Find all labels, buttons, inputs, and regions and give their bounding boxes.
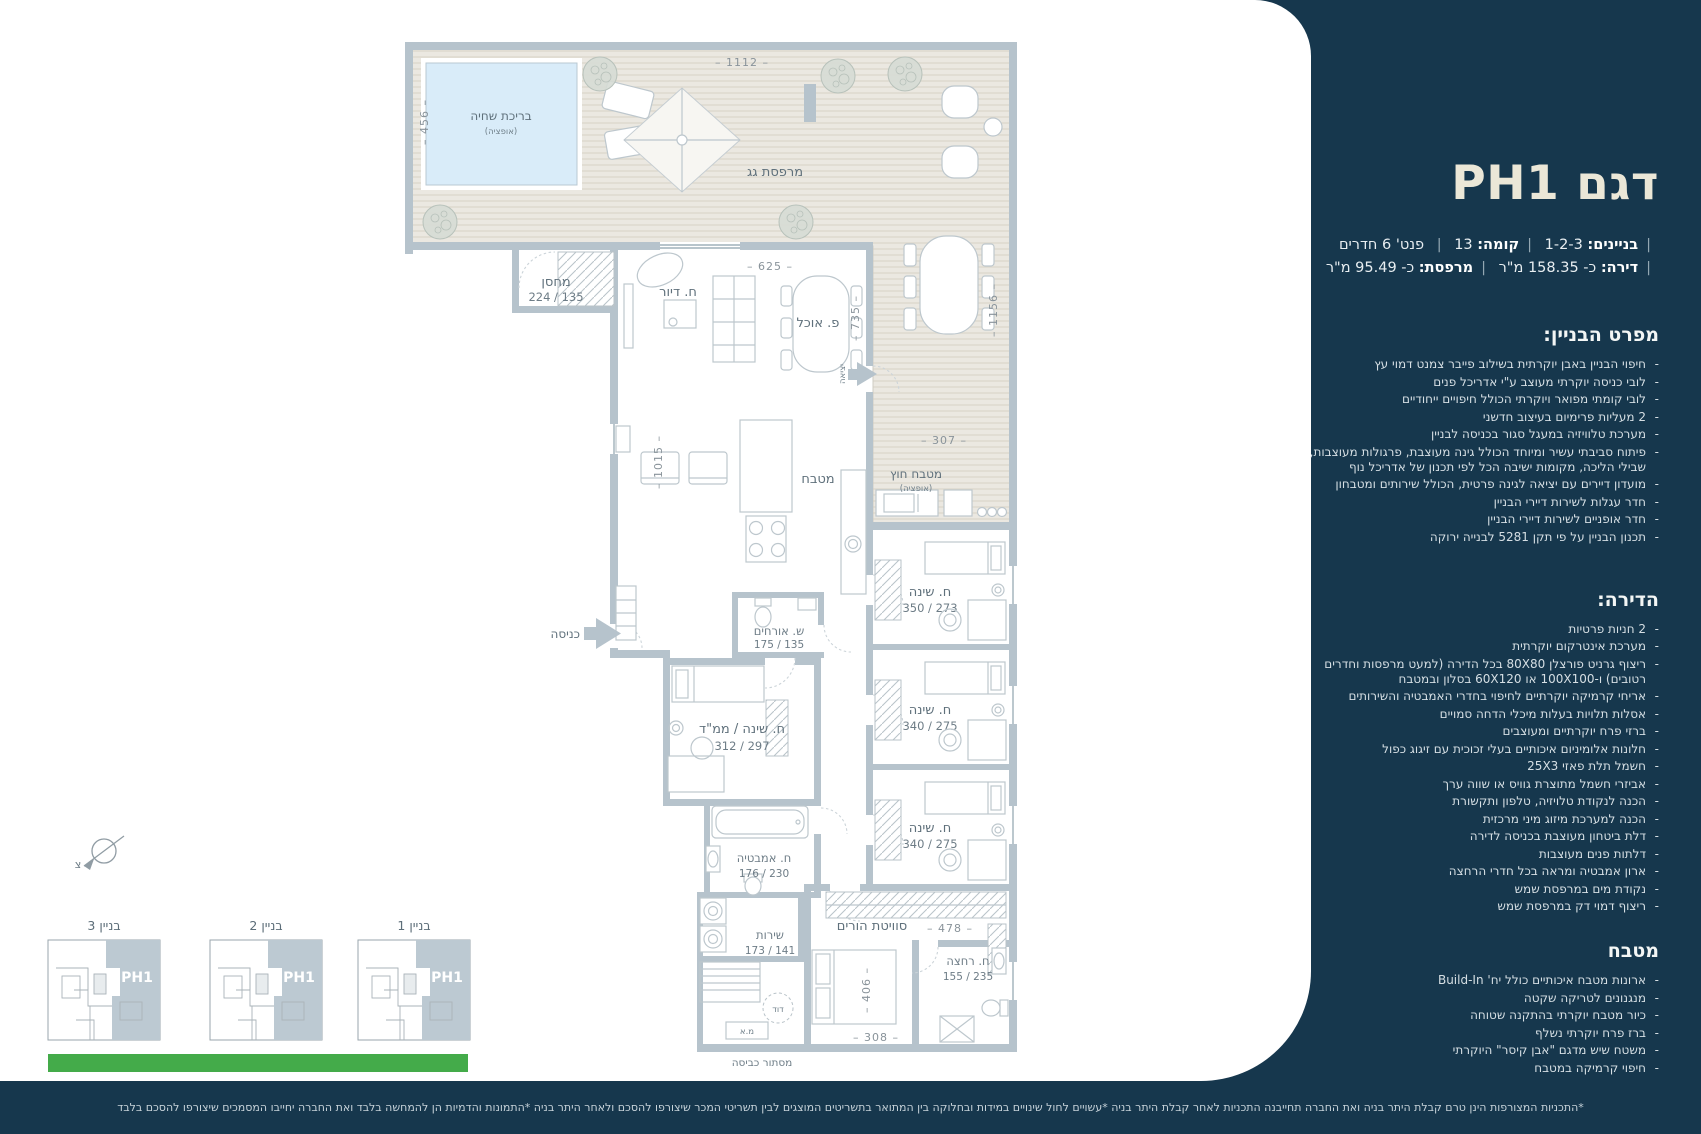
key-plan-unit-label: PH1 (283, 970, 315, 986)
spec-item: חיפוי הבניין באבן יוקרתית בשילוב פייבר צ… (1297, 357, 1659, 372)
spec-item: חיפוי קרמיקה במטבח (1297, 1061, 1659, 1076)
page-title: דגם PH1 (1297, 158, 1659, 210)
label-master-bath: ח. רחצה (946, 954, 989, 968)
north-compass-icon: צ (75, 836, 124, 871)
kitchen-spec-list: ארונות מטבח איכותיים כולל יח' Build-Inמנ… (1297, 973, 1659, 1076)
label-bedroom-2: ח. שינה (909, 703, 952, 718)
dim-master-bed: – 406 – (860, 967, 873, 1013)
spec-item: דלתות פנים מעוצבות (1297, 847, 1659, 862)
label-bedroom-1-dims: 350 / 273 (902, 601, 957, 615)
meta-segment: | פנט' 6 חדרים (1339, 237, 1450, 253)
label-north: צ (75, 858, 82, 871)
spec-item: כיור מטבח יוקרתי בהתקנה שטוחה (1297, 1008, 1659, 1023)
label-living: ח. דיור (659, 285, 697, 300)
page: { "colors":{ "navy":"#16374d","cream":"#… (0, 0, 1701, 1134)
label-master-suite: סוויטת הורים (837, 919, 907, 934)
spec-item: מערכת אינטרקום יוקרתית (1297, 639, 1659, 654)
spec-item: משטח שיש מדגם "אבן קיסר" היוקרתי (1297, 1043, 1659, 1058)
spec-item: ארונות מטבח איכותיים כולל יח' Build-In (1297, 973, 1659, 988)
spec-item: פיתוח סביבתי עשיר ומיוחד הכולל גינה מעוצ… (1297, 445, 1659, 475)
meta-segment: |בניינים: 1-2-3 (1545, 237, 1659, 253)
spec-item: ריצוף גרניט פורצלן 80X80 בכל הדירה (למעט… (1297, 657, 1659, 687)
label-bedroom-2-dims: 340 / 275 (902, 719, 957, 733)
meta-line-1: |בניינים: 1-2-3 |קומה: 13 | פנט' 6 חדרים (1297, 234, 1659, 257)
label-wc: שירות (756, 928, 784, 942)
dim-terrace: – 1156 – (987, 283, 1000, 337)
meta-segment: |מרפסת: כ- 95.49 מ"ר (1326, 260, 1494, 276)
label-bathroom-dims: 176 / 230 (739, 868, 789, 880)
label-roof-terrace: מרפסת גג (747, 165, 803, 180)
label-guest-wc-dims: 175 / 135 (754, 639, 804, 651)
spec-item: דלת ביטחון מעוצבת בכניסה לדירה (1297, 829, 1659, 844)
disclaimer-text: *התכניות המצורפות הינן טרם קבלת היתר בני… (117, 1101, 1584, 1114)
spec-item: ריצוף דמוי דק במרפסת שמש (1297, 899, 1659, 914)
spec-item: חדר עגלות לשירות דיירי הבניין (1297, 495, 1659, 510)
dim-kitchen: – 1015 – (652, 435, 665, 489)
label-master-bath-dims: 155 / 235 (943, 971, 993, 983)
key-plan-building-1: בניין 1 PH1 (358, 918, 470, 1040)
spec-item: ארון אמבטיה ומראה בכל חדרי הרחצה (1297, 864, 1659, 879)
label-storage-dims: 224 / 135 (528, 290, 583, 304)
section-heading-building: מפרט הבניין: (1297, 324, 1659, 346)
label-pool-option: (אופציה) (485, 127, 517, 137)
swimming-pool (421, 58, 582, 190)
label-boiler: דוד (772, 1005, 784, 1015)
label-ac: מ.א (740, 1027, 754, 1037)
spec-item: חשמל תלת פאזי 25X3 (1297, 759, 1659, 774)
dim-top: – 1112 – (715, 56, 769, 69)
dim-pool: – 456 – (418, 99, 431, 145)
meta-line-2: |דירה: כ- 158.35 מ"ר |מרפסת: כ- 95.49 מ"… (1297, 257, 1659, 280)
label-laundry: מסתור כביסה (732, 1057, 793, 1069)
spec-item: הכנה לנקודת טלויזיה, טלפון ותקשורת (1297, 794, 1659, 809)
label-bedroom-3: ח. שינה (909, 821, 952, 836)
dim-outdoor-kitchen: – 307 – (921, 434, 967, 447)
spec-item: ברז פרח יוקרתי נשלף (1297, 1026, 1659, 1041)
spec-item: ברזי פרח יוקרתיים ומעוצבים (1297, 724, 1659, 739)
spec-item: תכנון הבניין על פי תקן 5281 לבנייה ירוקה (1297, 530, 1659, 545)
guest-wc-fixtures (755, 598, 816, 627)
spec-item: מועדון דיירים עם יציאה לגינה פרטית, הכול… (1297, 477, 1659, 492)
key-plan-title: בניין 3 (87, 918, 120, 933)
footer: *התכניות המצורפות הינן טרם קבלת היתר בני… (0, 1081, 1701, 1134)
dim-living: – 625 – (747, 260, 793, 273)
label-entrance: כניסה (551, 627, 580, 641)
spec-item: חדר אופניים לשירות דיירי הבניין (1297, 512, 1659, 527)
key-plan-building-3: בניין 3 PH1 (48, 918, 160, 1040)
spec-item: חלונות אלומיניום איכותיים בעלי זכוכית עם… (1297, 742, 1659, 757)
apartment-spec-list: 2 חניות פרטיותמערכת אינטרקום יוקרתיתריצו… (1297, 622, 1659, 915)
key-plan-unit-label: PH1 (121, 970, 153, 986)
spec-item: לובי כניסה יוקרתי מעוצב ע"י אדריכל פנים (1297, 375, 1659, 390)
label-dining: פ. אוכל (797, 316, 840, 331)
spec-item: נקודת מים במרפסת שמש (1297, 882, 1659, 897)
green-accent-bar (48, 1054, 468, 1072)
spec-item: אריחי קרמיקה יוקרתיים לחיפוי בחדרי האמבט… (1297, 689, 1659, 704)
section-heading-apartment: הדירה: (1297, 589, 1659, 611)
service-wc-fixtures (700, 898, 726, 952)
dim-dining: – 735 – (849, 295, 862, 341)
living-furniture (616, 246, 755, 484)
building-spec-list: חיפוי הבניין באבן יוקרתית בשילוב פייבר צ… (1297, 357, 1659, 545)
dim-master-w: – 478 – (927, 922, 973, 935)
spec-item: לובי קומתי מפואר ויוקרתי הכולל חיפויים י… (1297, 392, 1659, 407)
label-bathroom: ח. אמבטיה (737, 851, 792, 865)
floor-plan: – 1112 – – 456 – – 625 – – 735 – – 1015 … (0, 0, 1311, 1081)
spec-item: הכנה למערכת מיזוג מיני מרכזית (1297, 812, 1659, 827)
label-mamad: ח. שינה / ממ"ד (699, 722, 785, 737)
dim-master-bottom: – 308 – (853, 1031, 899, 1044)
label-outdoor-kitchen: מטבח חוץ (890, 467, 942, 481)
label-exit: יציאה (838, 364, 848, 384)
label-storage: מחסן (541, 275, 570, 290)
spec-item: 2 מעליות פרימיום בעיצוב חדשני (1297, 410, 1659, 425)
label-bedroom-1: ח. שינה (909, 585, 952, 600)
spec-item: אסלות תלויות בעלות מיכלי הדחה סמויים (1297, 707, 1659, 722)
label-outdoor-kitchen-option: (אופציה) (900, 484, 932, 494)
key-plan-title: בניין 2 (249, 918, 282, 933)
spec-item: אביזרי חשמל מתוצרת גוויס או שווה ערך (1297, 777, 1659, 792)
meta-segment: |קומה: 13 (1454, 237, 1540, 253)
meta-segment: |דירה: כ- 158.35 מ"ר (1499, 260, 1659, 276)
key-plan-title: בניין 1 (397, 918, 430, 933)
spec-item: 2 חניות פרטיות (1297, 622, 1659, 637)
sidebar: דגם PH1 |בניינים: 1-2-3 |קומה: 13 | פנט'… (1297, 0, 1659, 1078)
label-guest-wc: ש. אורחים (754, 624, 805, 638)
key-plan-building-2: בניין 2 PH1 (210, 918, 322, 1040)
key-plan-unit-label: PH1 (431, 970, 463, 986)
section-heading-kitchen: מטבח (1297, 940, 1659, 962)
label-kitchen: מטבח (801, 472, 834, 487)
spec-item: מנגנונים לטריקה שקטה (1297, 991, 1659, 1006)
spec-item: מערכת טלוויזיה במעגל סגור בכניסה לבניין (1297, 427, 1659, 442)
plan-sheet: – 1112 – – 456 – – 625 – – 735 – – 1015 … (0, 0, 1311, 1081)
label-wc-dims: 173 / 141 (745, 945, 795, 957)
label-mamad-dims: 312 / 297 (714, 739, 769, 753)
label-pool: בריכת שחיה (470, 109, 531, 123)
